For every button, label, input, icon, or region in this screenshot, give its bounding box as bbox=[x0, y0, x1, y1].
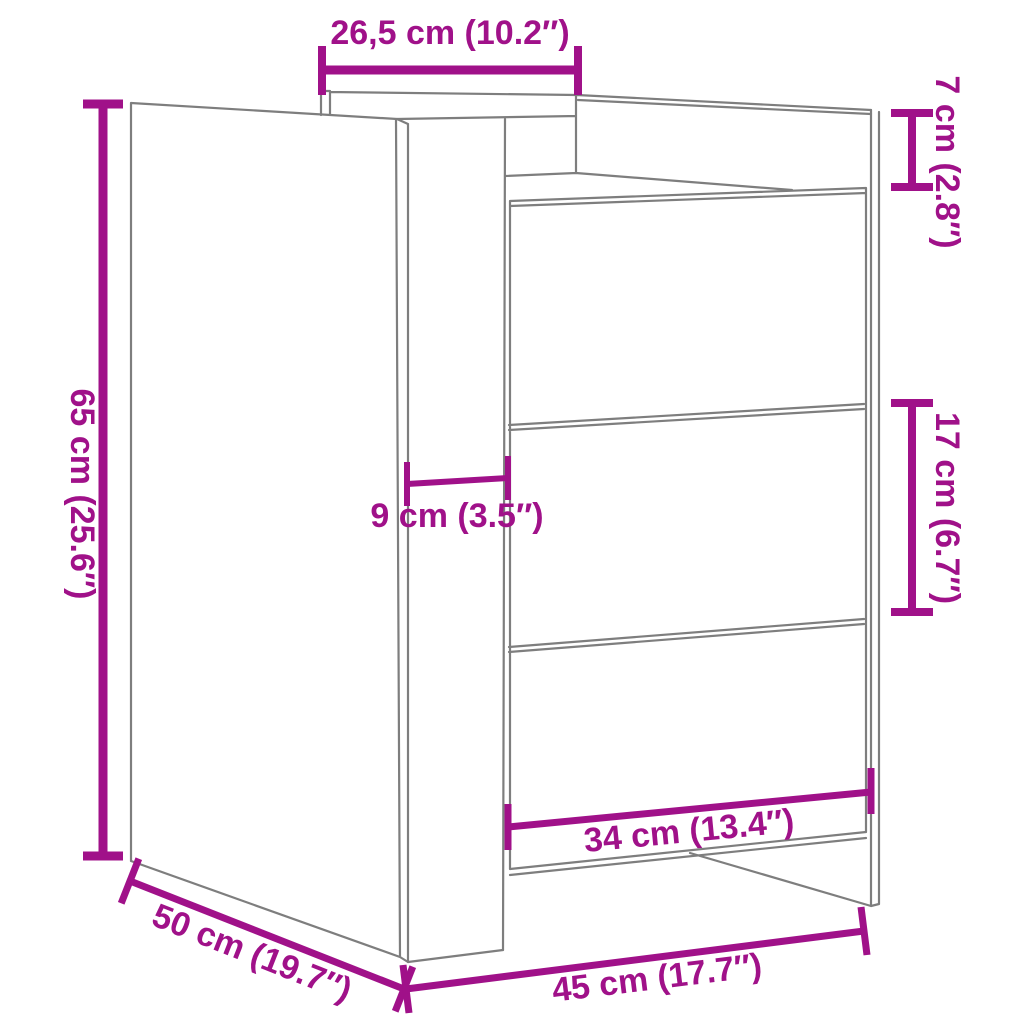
dim-line-drawer-height bbox=[891, 403, 933, 612]
dim-label-top-height: 7 cm (2.8″) bbox=[930, 75, 964, 248]
dim-label-drawer-height: 17 cm (6.7″) bbox=[930, 412, 964, 604]
dim-label-top-width: 26,5 cm (10.2″) bbox=[330, 16, 569, 50]
left-side-panel bbox=[131, 103, 408, 962]
dim-line-top-height bbox=[891, 113, 933, 187]
dim-label-overhang: 9 cm (3.5″) bbox=[370, 499, 543, 533]
dim-label-height: 65 cm (25.6″) bbox=[65, 389, 99, 600]
furniture-dimension-diagram: 26,5 cm (10.2″) 7 cm (2.8″) 65 cm (25.6″… bbox=[0, 0, 1024, 1024]
dim-line-top-width bbox=[322, 46, 578, 95]
top-panel bbox=[321, 91, 871, 190]
